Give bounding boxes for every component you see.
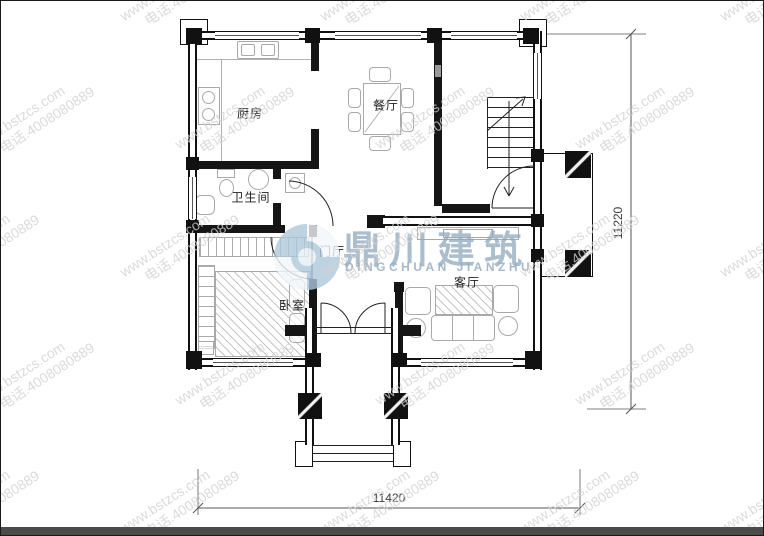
room-label-bedroom: 卧室 [279,297,305,314]
logo-english-name: DINGCHUAN JIANZHU [345,260,533,274]
logo-swirl-icon [271,221,343,293]
room-label-kitchen: 厨房 [237,105,263,122]
dimension-height: 11220 [611,207,625,239]
stair-break-line [487,97,525,131]
floor-plan-sheet: www.bstzcs.com电话.4008080889www.bstzcs.co… [0,0,764,536]
room-label-bathroom: 卫生间 [231,189,270,206]
room-label-living: 客厅 [454,274,480,291]
bathroom-door-arc [289,181,333,226]
bottom-edge-bar [1,527,763,535]
room-label-dining: 餐厅 [373,97,399,114]
stair-door-arc [492,166,534,208]
entry-door-left [321,303,351,333]
entry-door-right [355,303,385,333]
stair-up-arrow [504,101,514,196]
dimension-width: 11420 [373,491,405,505]
